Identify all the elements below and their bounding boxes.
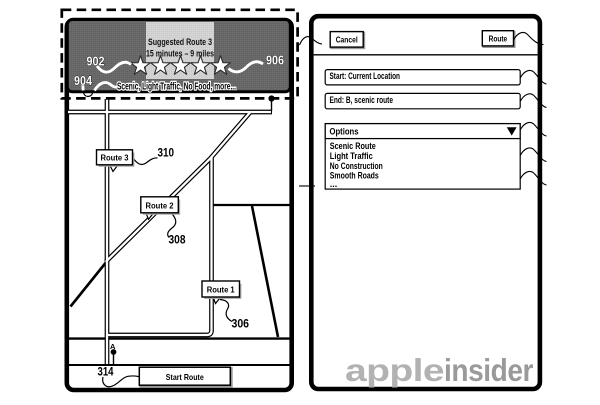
svg-text:904: 904	[74, 74, 92, 88]
svg-text:308: 308	[169, 235, 187, 247]
svg-text:...: ...	[330, 179, 338, 189]
svg-text:906: 906	[266, 54, 284, 68]
svg-text:314: 314	[98, 367, 115, 379]
svg-text:Start Route: Start Route	[166, 372, 204, 382]
svg-text:Suggested Route 3: Suggested Route 3	[148, 37, 212, 48]
svg-text:Route 3: Route 3	[101, 154, 130, 163]
svg-text:Cancel: Cancel	[336, 34, 358, 44]
svg-text:Options: Options	[330, 126, 359, 136]
svg-text:A: A	[110, 342, 116, 351]
svg-text:Scenic Route: Scenic Route	[330, 141, 376, 151]
svg-text:appleinsider: appleinsider	[345, 352, 533, 388]
svg-text:310: 310	[158, 148, 175, 160]
svg-text:Route: Route	[489, 33, 508, 43]
svg-text:No Construction: No Construction	[330, 161, 383, 171]
svg-text:902: 902	[87, 55, 105, 69]
svg-text:End: B, scenic route: End: B, scenic route	[330, 95, 394, 106]
svg-text:Route 2: Route 2	[146, 201, 175, 210]
svg-text:Start: Current Location: Start: Current Location	[330, 71, 401, 82]
svg-text:Route 1: Route 1	[207, 286, 236, 295]
svg-text:306: 306	[232, 319, 250, 331]
svg-text:Light Traffic: Light Traffic	[330, 151, 373, 161]
